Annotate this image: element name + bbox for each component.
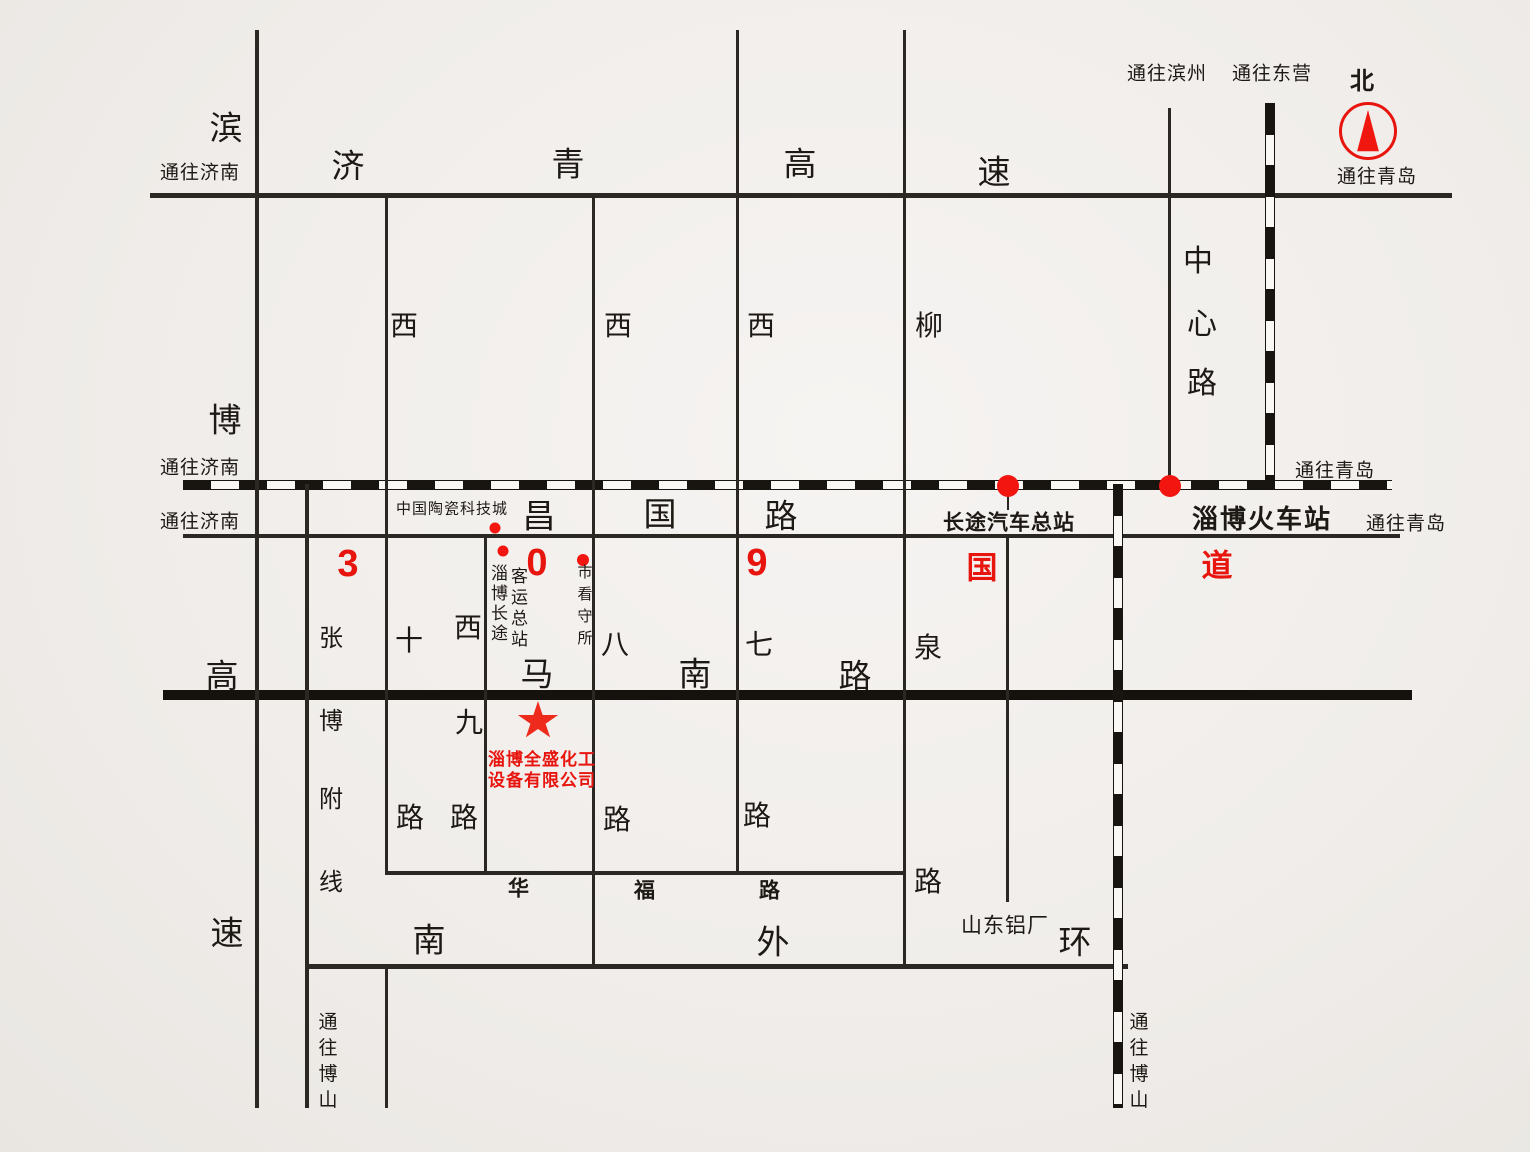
to-qingdao-changguo-label: 通往青岛 — [1366, 515, 1446, 534]
to-jinan-changguo-label: 通往济南 — [160, 513, 240, 532]
road-binbo-expressway — [255, 30, 259, 1108]
detention-house-label: 市 看 守 所 — [577, 562, 592, 650]
compass-needle-icon — [1351, 109, 1385, 153]
railway-jiaoji-line — [183, 480, 1392, 490]
nanwaihuan-char-wai: 外 — [757, 926, 790, 959]
binbo-char-su: 速 — [211, 917, 244, 950]
jiqing-char-qing: 青 — [552, 148, 585, 181]
to-binzhou-label: 通往滨州 — [1127, 65, 1207, 84]
xi7-char-lu: 路 — [743, 802, 771, 830]
zhongxin-char-xin: 心 — [1187, 310, 1217, 340]
g309-digit-0: 0 — [526, 544, 547, 582]
liuquan-char-quan: 泉 — [914, 634, 942, 662]
road-nanwaihuan — [307, 964, 1128, 969]
to-jinan-railway-label: 通往济南 — [160, 459, 240, 478]
xi10-char-xi: 西 — [390, 312, 418, 340]
zhangbo-char-bo: 博 — [319, 710, 343, 734]
compass-north-icon — [1339, 102, 1397, 160]
road-jiqing-expressway — [150, 193, 1452, 198]
manan-char-lu: 路 — [839, 660, 872, 693]
route-map: 北 通往济南 通往济南 通往济南 通往青岛 通往青岛 通往青岛 通往滨州 通往东… — [0, 0, 1530, 1152]
xi9-char-lu: 路 — [450, 804, 478, 832]
road-xi7 — [736, 30, 739, 875]
road-xi10 — [385, 194, 388, 875]
zhongxin-char-lu: 路 — [1187, 369, 1217, 399]
company-name-label: 淄博全盛化工 设备有限公司 — [488, 749, 596, 791]
nanwaihuan-char-huan: 环 — [1059, 926, 1092, 959]
road-xi10-south — [385, 964, 388, 1108]
railway-station-dot — [1159, 475, 1181, 497]
g309-char-dao: 道 — [1202, 551, 1233, 582]
road-manan — [163, 690, 1412, 700]
manan-char-ma: 马 — [521, 658, 554, 691]
changguo-char-lu: 路 — [765, 500, 798, 533]
liuquan-char-liu: 柳 — [915, 312, 943, 340]
huafu-char-hua: 华 — [508, 879, 530, 900]
road-changguo — [183, 534, 1400, 538]
road-aluminum-spur — [1006, 534, 1009, 902]
huafu-char-fu: 福 — [634, 881, 656, 902]
binbo-char-gao: 高 — [206, 660, 239, 693]
bus-terminal-station-dot — [997, 475, 1019, 497]
xi7-char-xi: 西 — [747, 312, 775, 340]
road-liuquan — [903, 30, 906, 969]
railway-zhangdong-line — [1265, 103, 1275, 484]
xi7-char-qi: 七 — [745, 631, 773, 659]
zhangbo-char-xian: 线 — [319, 871, 343, 895]
to-boshan-right-label: 通 往 博 山 — [1129, 1010, 1148, 1114]
road-xi9 — [484, 534, 487, 875]
xi10-char-shi: 十 — [395, 627, 423, 655]
road-zhangbo-branch — [305, 484, 309, 1108]
xi8-char-lu: 路 — [603, 806, 631, 834]
huafu-char-lu: 路 — [759, 881, 781, 902]
aluminum-plant-label: 山东铝厂 — [961, 916, 1049, 937]
railway-station-label: 淄博火车站 — [1192, 506, 1332, 532]
zhongxin-char-zhong: 中 — [1183, 247, 1213, 277]
g309-digit-3: 3 — [337, 545, 358, 583]
xi8-char-xi: 西 — [604, 312, 632, 340]
binbo-char-bin: 滨 — [210, 112, 243, 145]
road-huafu — [388, 871, 905, 875]
railway-zhangbo-line — [1113, 484, 1123, 1108]
manan-char-nan: 南 — [679, 658, 712, 691]
jiqing-char-su: 速 — [978, 156, 1011, 189]
changguo-char-chang: 昌 — [523, 500, 556, 533]
ceramics-city-dot — [490, 523, 501, 534]
liuquan-char-lu: 路 — [914, 868, 942, 896]
north-label: 北 — [1350, 70, 1374, 94]
coach-terminal-label: 淄 博 长 途 客 运 总 站 — [491, 564, 528, 650]
binbo-char-bo: 博 — [209, 404, 242, 437]
g309-digit-9: 9 — [746, 544, 767, 582]
xi9-char-xi: 西 — [454, 614, 482, 642]
jiqing-char-gao: 高 — [784, 148, 817, 181]
to-qingdao-railway-label: 通往青岛 — [1295, 462, 1375, 481]
to-jinan-expwy-label: 通往济南 — [160, 164, 240, 183]
coach-terminal-dot — [498, 546, 509, 557]
nanwaihuan-char-nan: 南 — [413, 924, 446, 957]
company-location-star — [517, 701, 559, 741]
to-dongying-label: 通往东营 — [1232, 65, 1312, 84]
xi10-char-lu: 路 — [396, 804, 424, 832]
to-boshan-left-label: 通 往 博 山 — [318, 1010, 337, 1114]
changguo-char-guo: 国 — [644, 498, 677, 531]
zhangbo-char-zhang: 张 — [319, 627, 343, 651]
road-zhongxin — [1168, 108, 1171, 486]
longdist-bus-station-label: 长途汽车总站 — [943, 513, 1075, 534]
ceramics-city-label: 中国陶瓷科技城 — [396, 502, 508, 517]
xi8-char-ba: 八 — [601, 631, 629, 659]
to-qingdao-expwy-label: 通往青岛 — [1337, 168, 1417, 187]
jiqing-char-ji: 济 — [332, 150, 365, 183]
zhangbo-char-fu: 附 — [319, 788, 343, 812]
g309-char-guo: 国 — [967, 553, 998, 584]
xi9-char-jiu: 九 — [455, 709, 483, 737]
